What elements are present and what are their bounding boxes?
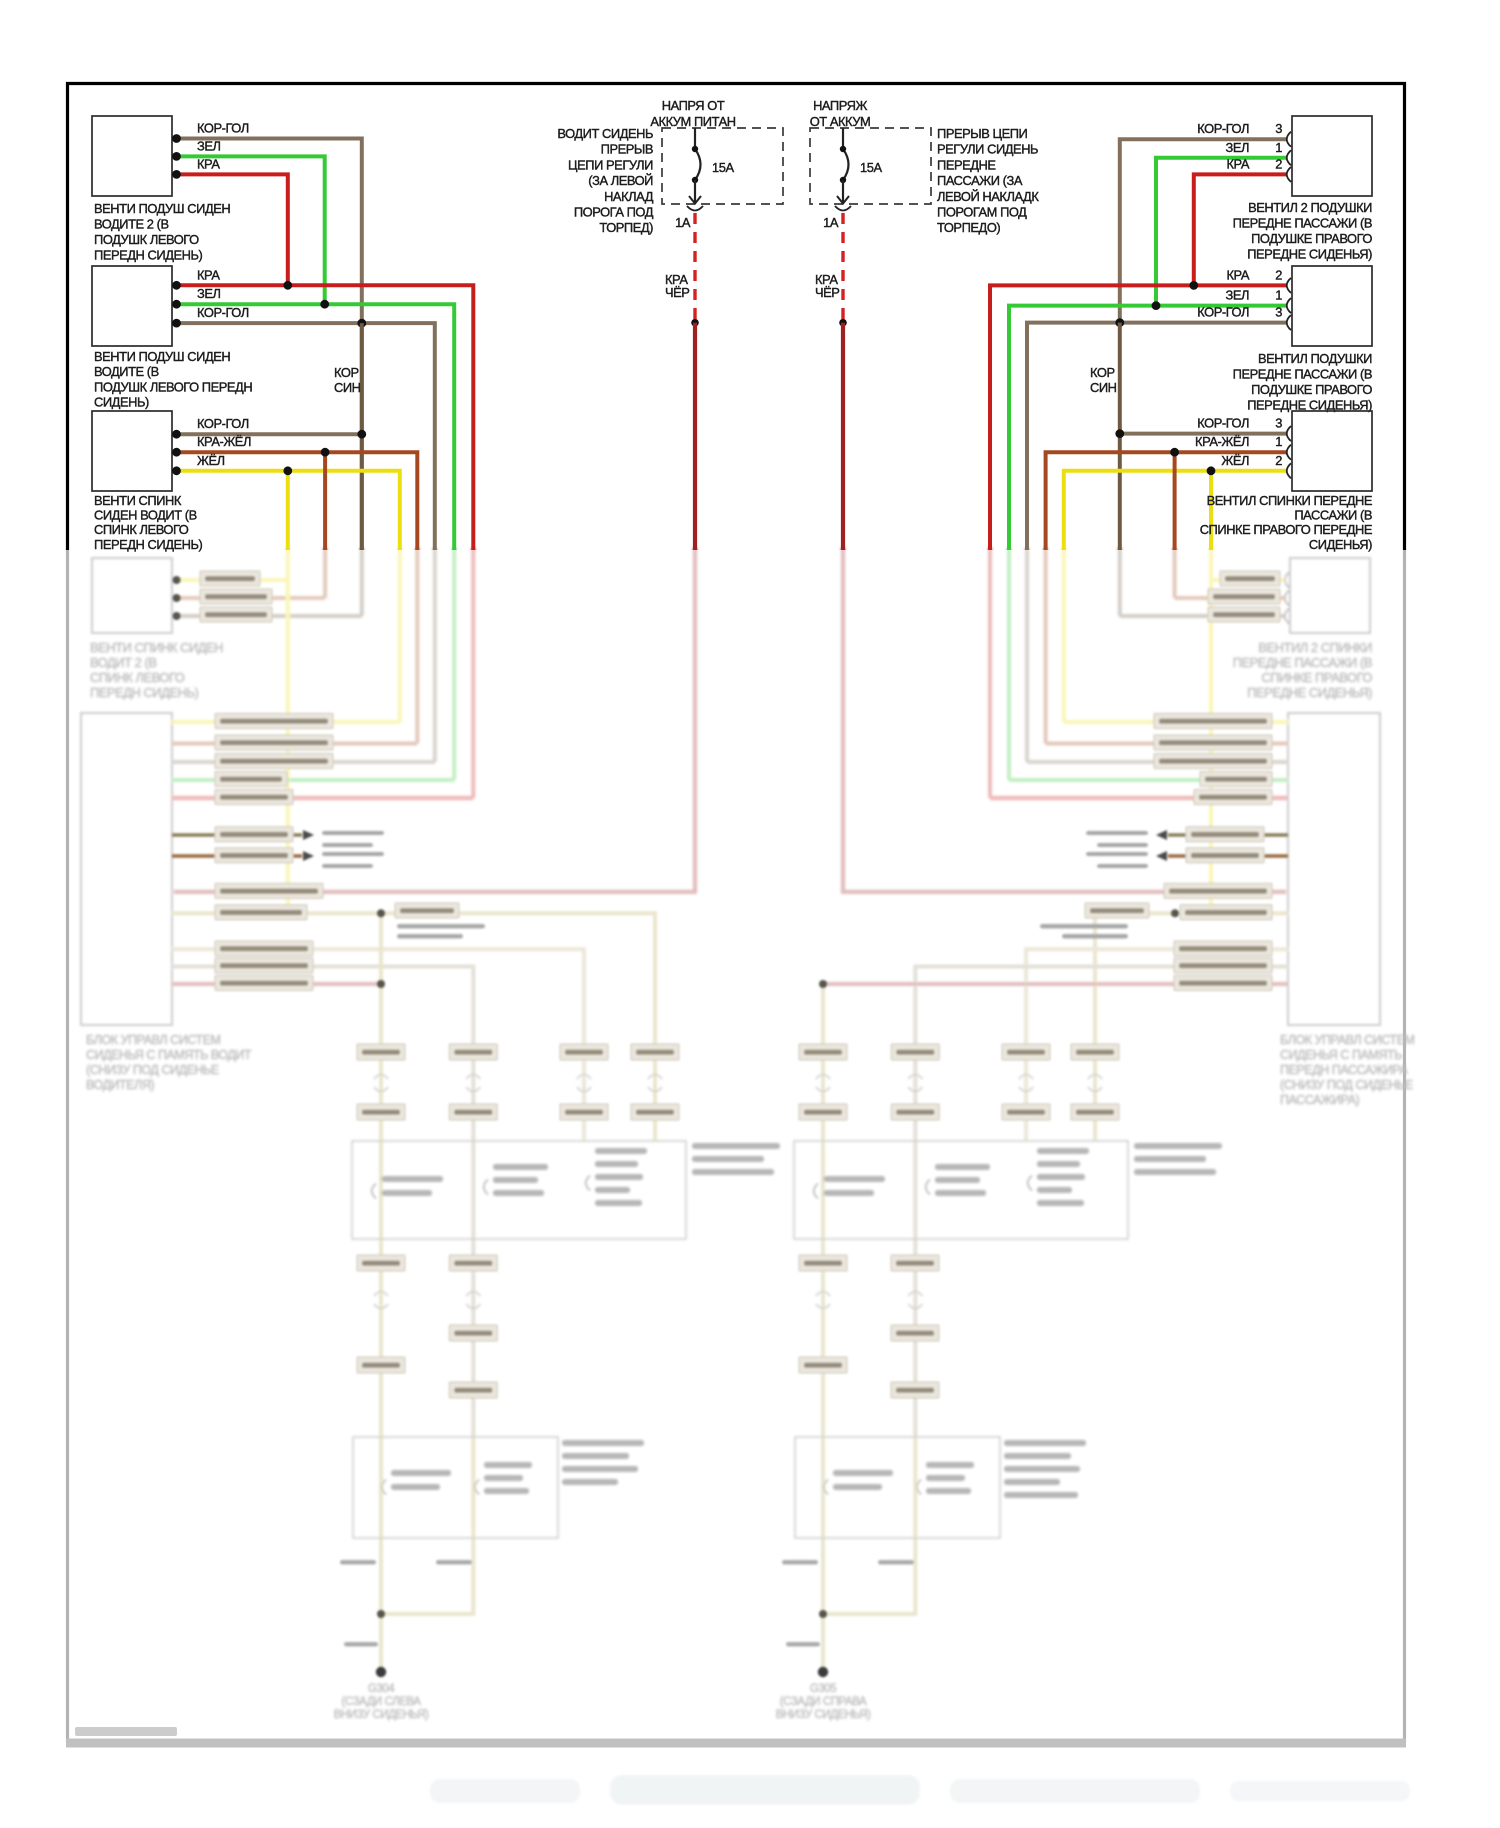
svg-text:СИН: СИН (334, 380, 361, 395)
svg-text:ВЕНТИЛ 2 ПОДУШКИ: ВЕНТИЛ 2 ПОДУШКИ (1248, 200, 1372, 215)
svg-text:ПОДУШКЕ ПРАВОГО: ПОДУШКЕ ПРАВОГО (1251, 231, 1372, 246)
svg-text:ТОРПЕДО): ТОРПЕДО) (937, 220, 1000, 235)
svg-text:ЗЕЛ: ЗЕЛ (1226, 288, 1250, 303)
svg-text:2: 2 (1275, 453, 1282, 468)
svg-text:ЛЕВОЙ НАКЛАДК: ЛЕВОЙ НАКЛАДК (937, 189, 1039, 204)
svg-text:ВОДИТ СИДЕНЬ: ВОДИТ СИДЕНЬ (557, 126, 653, 141)
svg-text:КОР-ГОЛ: КОР-ГОЛ (1197, 121, 1249, 136)
svg-text:АККУМ ПИТАН: АККУМ ПИТАН (650, 114, 735, 129)
svg-text:1: 1 (1275, 140, 1282, 155)
svg-text:КРА: КРА (197, 156, 220, 171)
svg-text:СИН: СИН (1090, 380, 1117, 395)
svg-text:ВОДИТЕ 2 (В: ВОДИТЕ 2 (В (94, 217, 169, 232)
svg-text:ПЕРЕДНЕ: ПЕРЕДНЕ (937, 157, 996, 172)
svg-text:ПЕРЕДНЕ СИДЕНЬЯ): ПЕРЕДНЕ СИДЕНЬЯ) (1247, 247, 1372, 262)
svg-text:ВЕНТИЛ ПОДУШКИ: ВЕНТИЛ ПОДУШКИ (1258, 351, 1372, 366)
svg-text:РЕГУЛИ СИДЕНЬ: РЕГУЛИ СИДЕНЬ (937, 142, 1038, 157)
svg-text:СПИНКЕ ПРАВОГО ПЕРЕДНЕ: СПИНКЕ ПРАВОГО ПЕРЕДНЕ (1200, 522, 1373, 537)
svg-text:ПЕРЕДН СИДЕНЬ): ПЕРЕДН СИДЕНЬ) (94, 537, 203, 552)
svg-text:ТОРПЕД): ТОРПЕД) (599, 220, 653, 235)
svg-text:1: 1 (1275, 288, 1282, 303)
svg-text:ВОДИТЕ (В: ВОДИТЕ (В (94, 364, 159, 379)
svg-text:ПОРОГА ПОД: ПОРОГА ПОД (574, 205, 654, 220)
svg-text:КОР-ГОЛ: КОР-ГОЛ (197, 416, 249, 431)
svg-text:КОР-ГОЛ: КОР-ГОЛ (1197, 416, 1249, 431)
svg-text:КРА: КРА (1227, 156, 1250, 171)
svg-text:1A: 1A (675, 215, 691, 230)
svg-text:15A: 15A (860, 160, 882, 175)
svg-text:СИДЕНЬЯ): СИДЕНЬЯ) (1309, 537, 1372, 552)
svg-text:3: 3 (1275, 305, 1282, 320)
svg-text:ЗЕЛ: ЗЕЛ (197, 286, 221, 301)
svg-text:СИДЕНЬ): СИДЕНЬ) (94, 395, 149, 410)
svg-text:ПРЕРЫВ: ПРЕРЫВ (601, 142, 653, 157)
svg-text:НАПРЯ ОТ: НАПРЯ ОТ (662, 98, 725, 113)
svg-text:СПИНК ЛЕВОГО: СПИНК ЛЕВОГО (94, 522, 189, 537)
svg-text:3: 3 (1275, 121, 1282, 136)
svg-text:ЖЁЛ: ЖЁЛ (197, 453, 225, 468)
svg-text:КОР-ГОЛ: КОР-ГОЛ (197, 305, 249, 320)
svg-text:ВЕНТИ ПОДУШ СИДЕН: ВЕНТИ ПОДУШ СИДЕН (94, 349, 230, 364)
svg-text:ПРЕРЫВ ЦЕПИ: ПРЕРЫВ ЦЕПИ (937, 126, 1028, 141)
svg-text:КРА: КРА (197, 267, 220, 282)
svg-text:ОТ АККУМ: ОТ АККУМ (810, 114, 871, 129)
svg-text:ЗЕЛ: ЗЕЛ (1226, 140, 1250, 155)
svg-text:КОР: КОР (1090, 365, 1115, 380)
svg-text:НАПРЯЖ: НАПРЯЖ (813, 98, 867, 113)
svg-text:НАКЛАД: НАКЛАД (604, 189, 654, 204)
svg-text:(ЗА ЛЕВОЙ: (ЗА ЛЕВОЙ (588, 173, 653, 188)
svg-text:ВЕНТИ ПОДУШ СИДЕН: ВЕНТИ ПОДУШ СИДЕН (94, 201, 230, 216)
svg-text:ЖЁЛ: ЖЁЛ (1221, 453, 1249, 468)
svg-text:ЗЕЛ: ЗЕЛ (197, 138, 221, 153)
svg-text:ПОРОГАМ ПОД: ПОРОГАМ ПОД (937, 205, 1027, 220)
svg-text:ПОДУШК ЛЕВОГО: ПОДУШК ЛЕВОГО (94, 232, 199, 247)
svg-text:ПОДУШКЕ ПРАВОГО: ПОДУШКЕ ПРАВОГО (1251, 382, 1372, 397)
svg-text:ПЕРЕДН СИДЕНЬ): ПЕРЕДН СИДЕНЬ) (94, 248, 203, 263)
svg-text:ПЕРЕДНЕ ПАССАЖИ (В: ПЕРЕДНЕ ПАССАЖИ (В (1233, 367, 1372, 382)
svg-text:КОР: КОР (334, 365, 359, 380)
svg-text:ПАССАЖИ (В: ПАССАЖИ (В (1294, 508, 1372, 523)
svg-text:ЦЕПИ РЕГУЛИ: ЦЕПИ РЕГУЛИ (568, 157, 653, 172)
svg-text:ВЕНТИЛ СПИНКИ ПЕРЕДНЕ: ВЕНТИЛ СПИНКИ ПЕРЕДНЕ (1207, 493, 1373, 508)
svg-text:ЧЁР: ЧЁР (665, 285, 689, 300)
svg-text:КРА: КРА (1227, 267, 1250, 282)
svg-text:КРА-ЖЁЛ: КРА-ЖЁЛ (1195, 434, 1249, 449)
svg-text:ПЕРЕДНЕ ПАССАЖИ (В: ПЕРЕДНЕ ПАССАЖИ (В (1233, 216, 1372, 231)
svg-text:1A: 1A (823, 215, 839, 230)
svg-text:ЧЁР: ЧЁР (815, 285, 839, 300)
svg-text:КОР-ГОЛ: КОР-ГОЛ (1197, 305, 1249, 320)
svg-text:3: 3 (1275, 416, 1282, 431)
svg-text:КРА-ЖЁЛ: КРА-ЖЁЛ (197, 434, 251, 449)
svg-text:СИДЕН ВОДИТ (В: СИДЕН ВОДИТ (В (94, 508, 197, 523)
svg-text:2: 2 (1275, 156, 1282, 171)
svg-text:КОР-ГОЛ: КОР-ГОЛ (197, 121, 249, 136)
svg-text:15A: 15A (712, 160, 734, 175)
svg-text:2: 2 (1275, 267, 1282, 282)
svg-text:ВЕНТИ СПИНК: ВЕНТИ СПИНК (94, 493, 182, 508)
svg-text:1: 1 (1275, 434, 1282, 449)
svg-text:ПОДУШК ЛЕВОГО ПЕРЕДН: ПОДУШК ЛЕВОГО ПЕРЕДН (94, 379, 252, 394)
svg-text:ПАССАЖИ (ЗА: ПАССАЖИ (ЗА (937, 173, 1023, 188)
